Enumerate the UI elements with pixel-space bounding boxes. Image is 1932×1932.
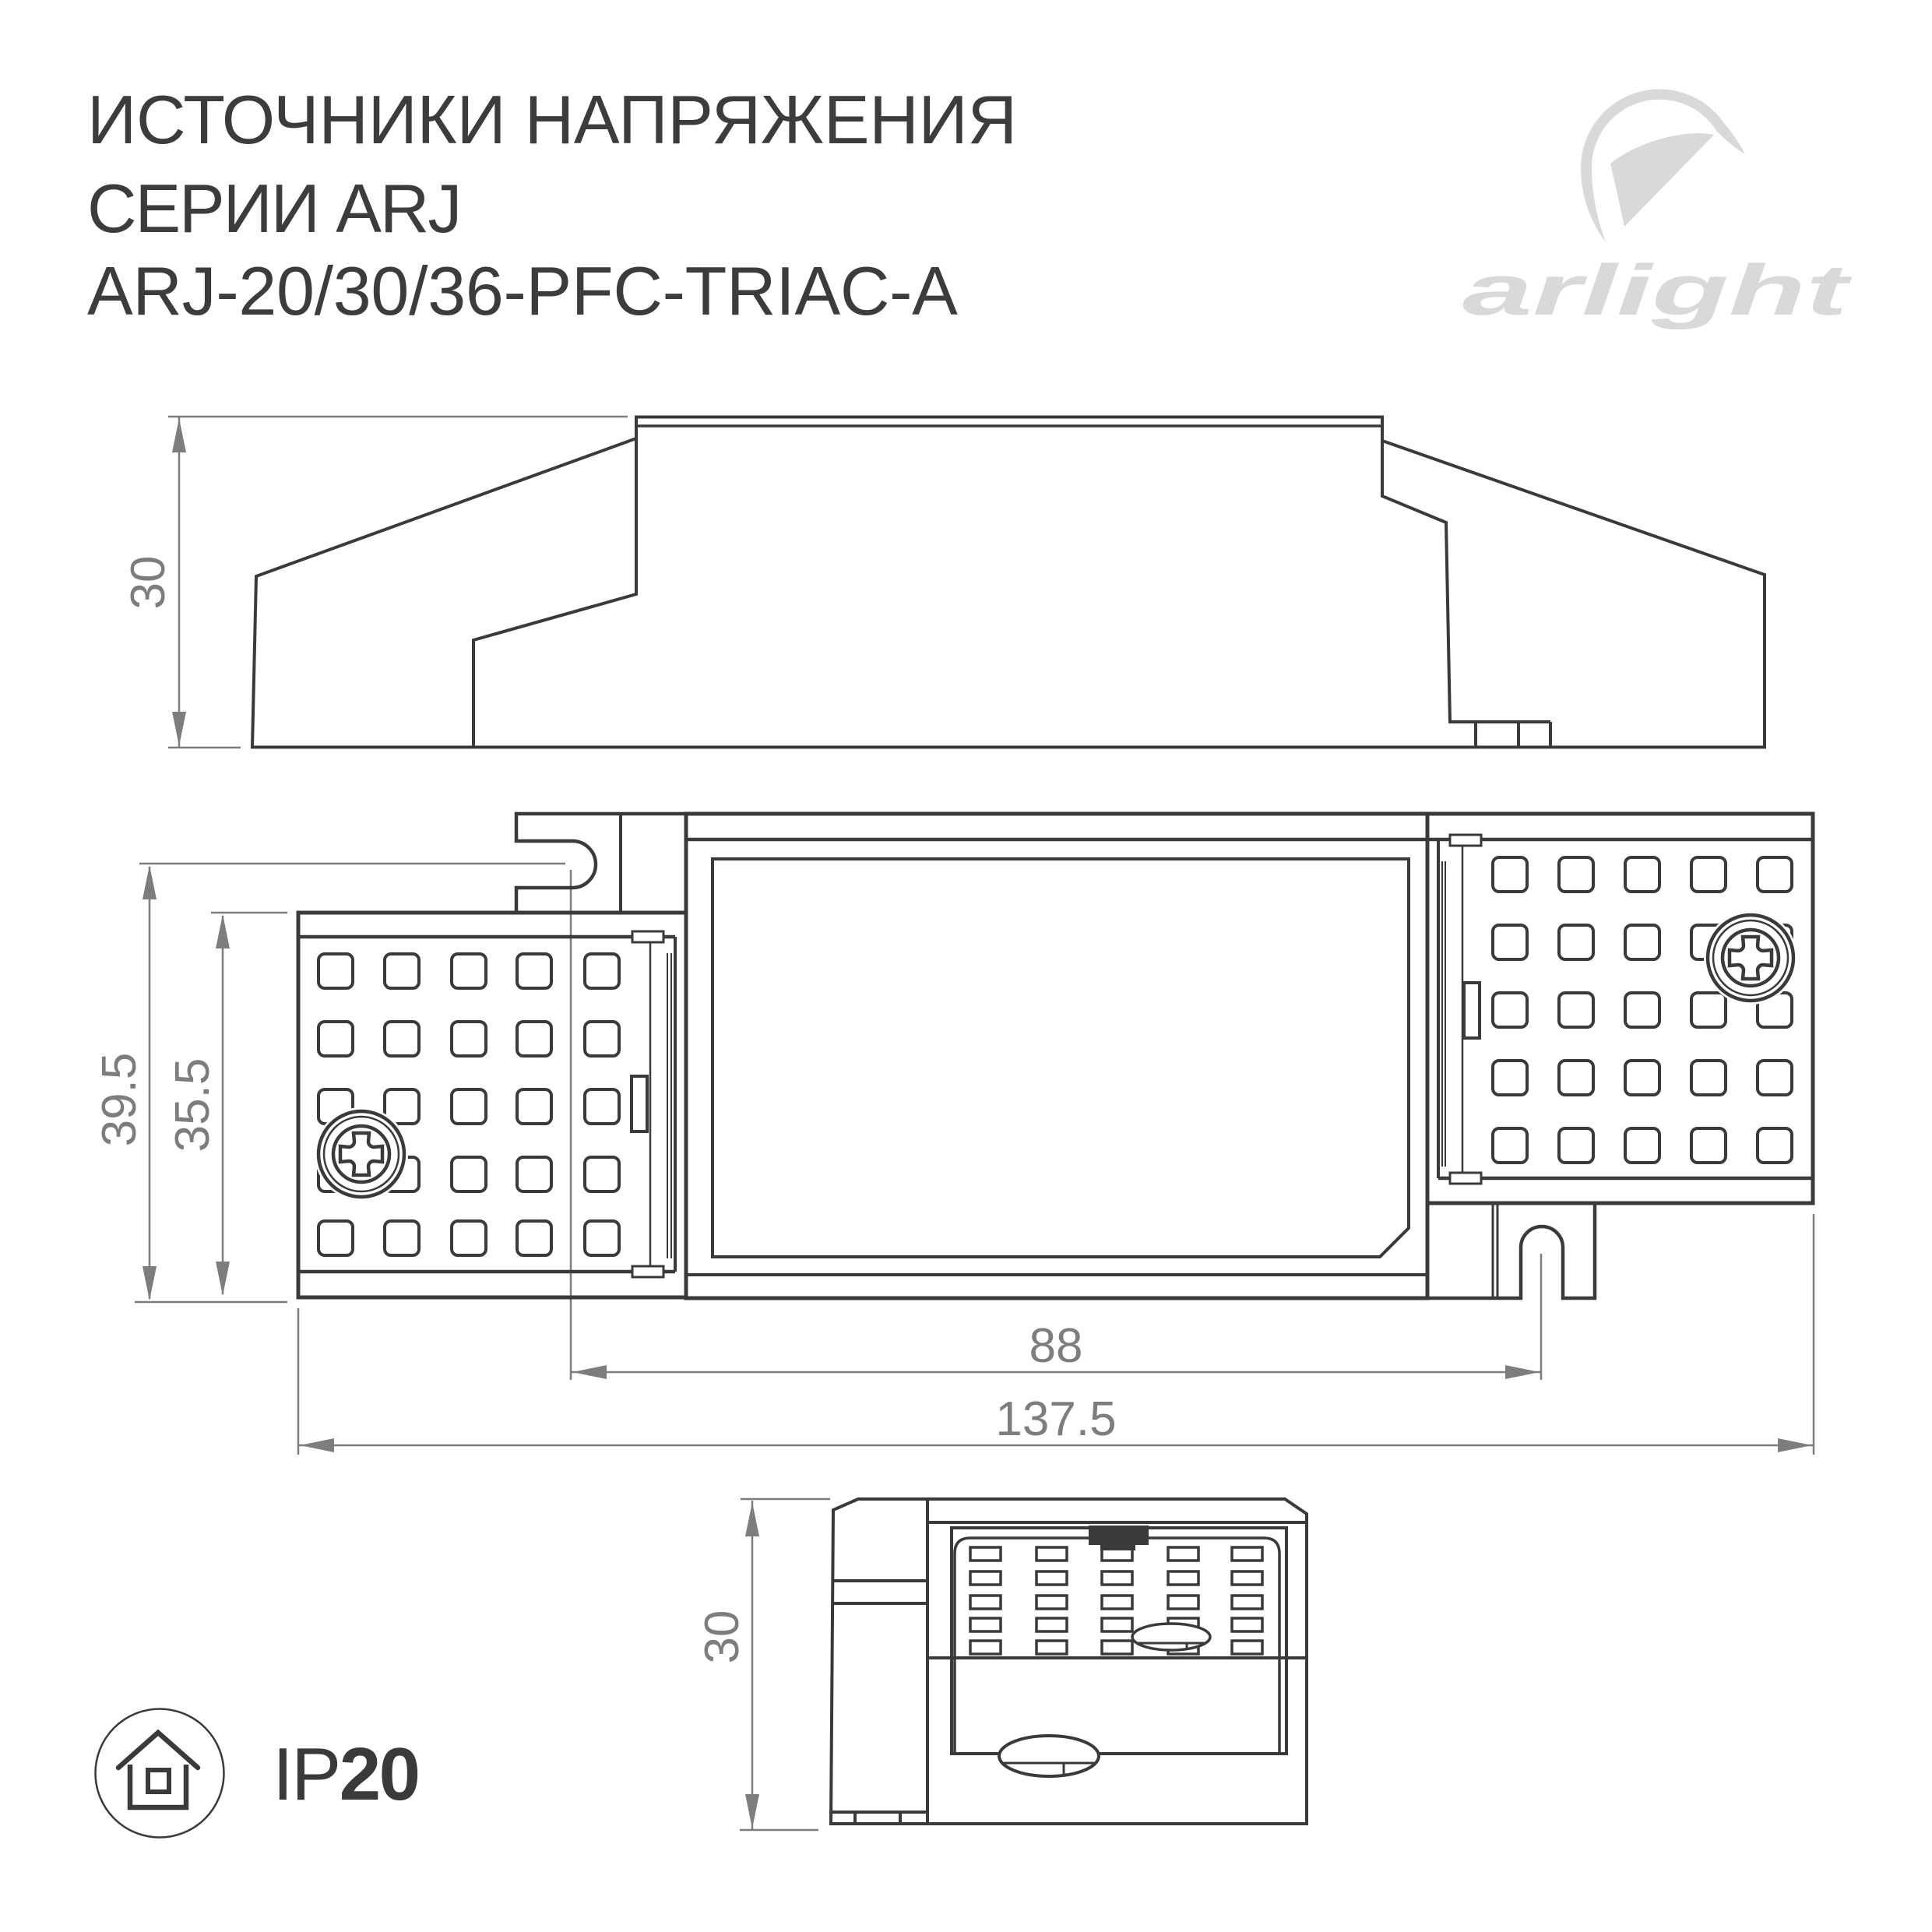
svg-text:ИСТОЧНИКИ НАПРЯЖЕНИЯ: ИСТОЧНИКИ НАПРЯЖЕНИЯ	[87, 81, 1017, 158]
svg-text:30: 30	[695, 1610, 749, 1664]
svg-text:39.5: 39.5	[93, 1053, 146, 1147]
svg-text:СЕРИИ ARJ: СЕРИИ ARJ	[87, 170, 460, 247]
svg-text:88: 88	[1029, 1319, 1083, 1373]
svg-text:ARJ-20/30/36-PFC-TRIAC-A: ARJ-20/30/36-PFC-TRIAC-A	[87, 252, 958, 329]
svg-text:30: 30	[121, 556, 175, 610]
svg-text:arlight: arlight	[1462, 250, 1853, 330]
svg-text:137.5: 137.5	[995, 1392, 1116, 1446]
svg-text:35.5: 35.5	[166, 1058, 220, 1153]
svg-text:IP20: IP20	[273, 1733, 418, 1816]
